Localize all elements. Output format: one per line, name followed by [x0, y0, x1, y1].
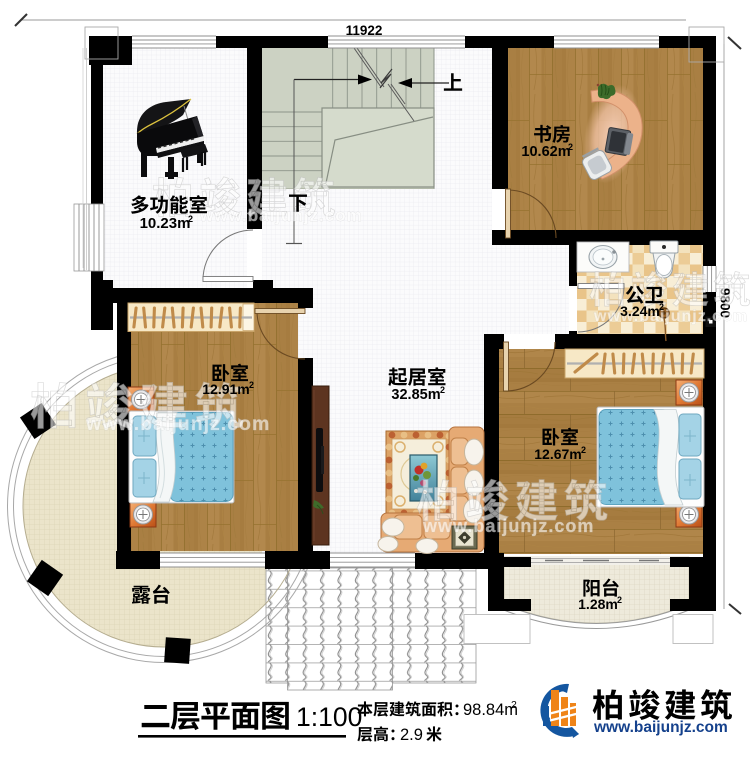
svg-text:3.24m: 3.24m [620, 303, 660, 319]
svg-text:www.baijunjz.com: www.baijunjz.com [85, 413, 270, 435]
svg-text:1.28m: 1.28m [578, 596, 618, 612]
svg-text:2: 2 [659, 302, 664, 312]
svg-text:10.23m: 10.23m [140, 215, 191, 232]
svg-text:2: 2 [581, 445, 586, 455]
svg-text:www.baijunjz.com: www.baijunjz.com [593, 308, 748, 325]
svg-text:10.62m: 10.62m [521, 144, 570, 160]
svg-text:2: 2 [617, 595, 622, 605]
svg-text:2: 2 [440, 385, 445, 395]
svg-text:98.84m: 98.84m [463, 701, 518, 719]
svg-text:2: 2 [249, 380, 254, 390]
svg-text:www.baijunjz.com: www.baijunjz.com [199, 206, 363, 225]
svg-text:2: 2 [188, 214, 193, 224]
svg-text:12.91m: 12.91m [202, 381, 249, 397]
svg-text:12.67m: 12.67m [534, 446, 581, 462]
svg-text:2: 2 [568, 142, 573, 152]
svg-text:www.baijunjz.com: www.baijunjz.com [593, 719, 728, 736]
svg-text:2: 2 [511, 699, 517, 711]
svg-text:www.baijunjz.com: www.baijunjz.com [422, 516, 594, 536]
svg-text:2.9: 2.9 [400, 726, 423, 744]
svg-text:1:100: 1:100 [296, 702, 362, 732]
svg-text:11922: 11922 [346, 23, 383, 38]
svg-text:32.85m: 32.85m [391, 387, 440, 403]
